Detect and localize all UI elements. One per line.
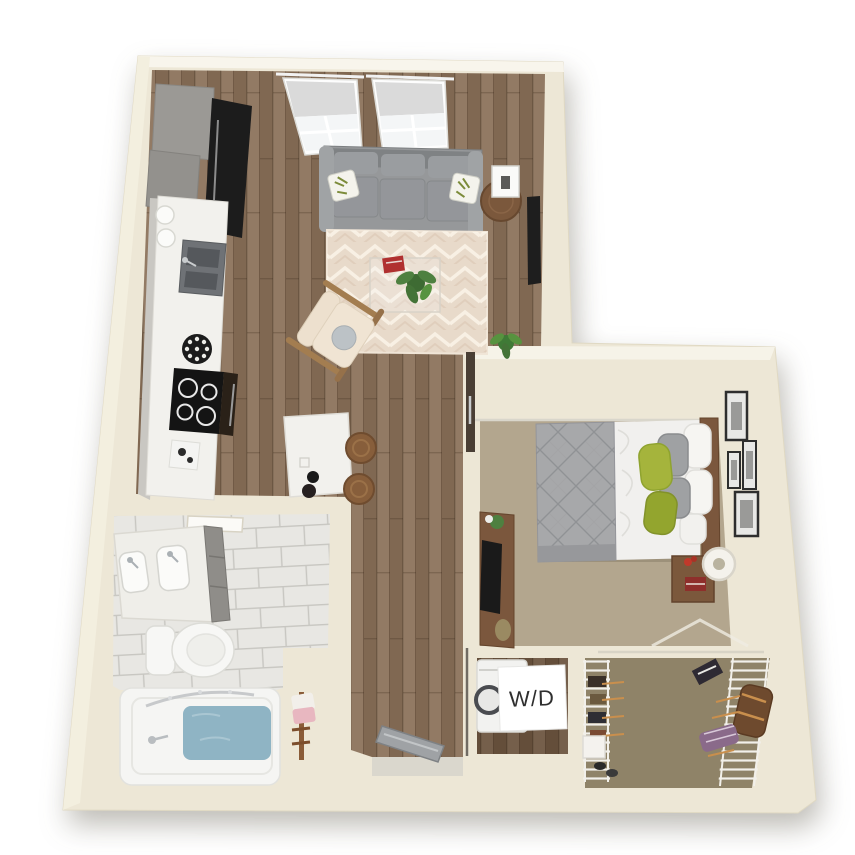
accent-pillow [449, 173, 481, 205]
duvet-fold [538, 544, 616, 562]
sofa-seat-cushion [380, 179, 425, 219]
pillow-green [643, 490, 679, 535]
cookie-plate [182, 334, 212, 364]
cooktop [169, 368, 238, 436]
toilet-tank [146, 626, 175, 675]
window-shade [286, 81, 357, 117]
bedroom-door [466, 352, 475, 452]
hanging-item [588, 676, 606, 687]
washer-door [476, 687, 502, 713]
nightstand-lamp [703, 548, 735, 580]
canister [156, 206, 174, 224]
wd-placard: W/D [498, 665, 567, 731]
flowers-red [684, 558, 692, 566]
bar-stool [346, 433, 376, 463]
kitchen-sink [179, 240, 226, 296]
kitchen-island [284, 413, 352, 498]
shoes [606, 769, 618, 777]
floor-plan-svg: W/D [0, 0, 855, 855]
media-console [480, 512, 514, 648]
coffee-table [370, 256, 440, 312]
floor-plan-image: W/D [0, 0, 855, 855]
canister [157, 229, 175, 247]
island-bowl [302, 484, 316, 498]
book-red [382, 256, 405, 274]
pillow-white [680, 514, 706, 544]
sofa [319, 146, 483, 237]
shoes [594, 762, 606, 770]
upper-cabinets [152, 84, 214, 160]
table-lamp [492, 166, 519, 197]
tv-living [527, 196, 541, 285]
accent-pillow [327, 169, 360, 202]
bathtub [120, 688, 280, 785]
window [372, 79, 448, 152]
entry-threshold [372, 757, 463, 776]
sink-basin [186, 247, 220, 268]
sink-basin [184, 271, 218, 290]
storage-box [583, 736, 605, 758]
sofa-back-cushion [334, 152, 378, 174]
flowers-red [691, 556, 697, 562]
bar-stool [344, 474, 374, 504]
sofa-back-cushion [381, 154, 425, 176]
wd-label: W/D [509, 685, 556, 712]
bed [536, 418, 720, 562]
toilet [146, 623, 234, 677]
island-bowl [307, 471, 319, 483]
duvet-quilt-pattern [536, 422, 616, 562]
sink-right [156, 545, 190, 592]
vanity [114, 526, 230, 622]
towel-pink [292, 707, 316, 725]
console-bag [495, 619, 511, 641]
tv-bedroom [480, 540, 502, 614]
window-shade [375, 82, 444, 116]
sink-left [118, 550, 149, 593]
cutting-board [169, 440, 200, 470]
pillow-green [638, 442, 674, 491]
